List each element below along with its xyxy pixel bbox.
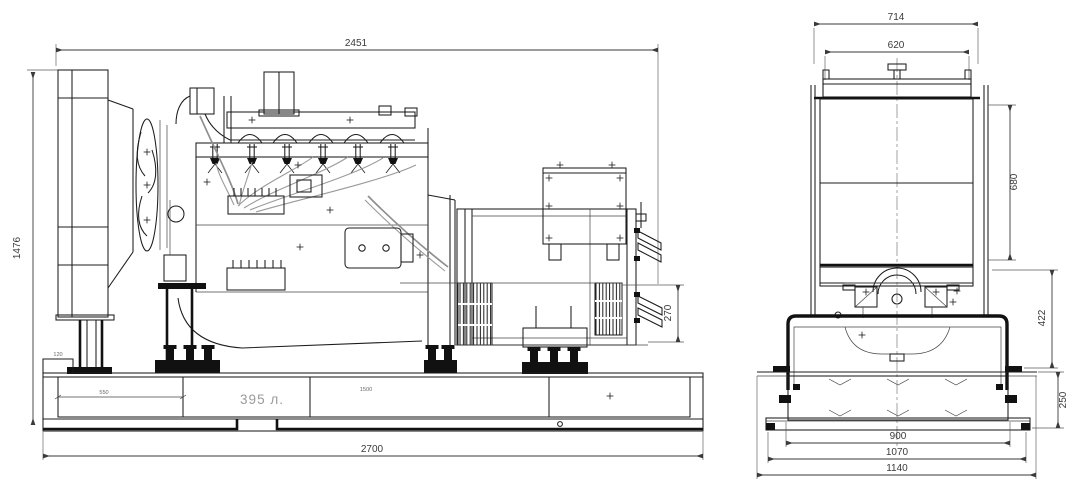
dim-tank-bay-left-label: 550 xyxy=(99,390,108,396)
engine-front xyxy=(835,268,960,318)
dim-mount-height: 270 xyxy=(622,285,684,342)
rear-vent-grille xyxy=(595,283,622,335)
dim-end-offset-label: 120 xyxy=(53,352,62,358)
cylinder-head xyxy=(196,143,428,157)
engine-side xyxy=(155,72,457,373)
dim-base-plate-width: 1140 xyxy=(757,376,1036,479)
tank-capacity-label: 395 л. xyxy=(240,392,284,407)
dim-base-height-label: 250 xyxy=(1058,391,1069,408)
drawing-canvas: 2451 1476 xyxy=(0,0,1078,488)
dim-frame-height: 422 xyxy=(992,270,1058,368)
generator-set-technical-drawing: 2451 1476 xyxy=(0,0,1078,488)
dim-radiator-height-label: 680 xyxy=(1009,173,1020,190)
oil-sump-front xyxy=(845,327,950,354)
dim-overall-height-label: 1476 xyxy=(12,236,23,259)
dim-mount-height-label: 270 xyxy=(663,304,674,321)
starter-motor xyxy=(345,228,413,268)
base-fuel-tank-side: 120 550 1500 395 л. xyxy=(43,352,703,431)
dim-channel-width-label: 1070 xyxy=(886,447,909,458)
dim-overall-length-label: 2451 xyxy=(345,38,368,49)
radiator-side xyxy=(56,70,133,374)
fuel-lines xyxy=(200,116,448,271)
terminal-box xyxy=(543,162,626,260)
air-intake-stack xyxy=(259,72,299,116)
dim-radiator-height: 680 xyxy=(988,105,1020,260)
right-view: 714 620 xyxy=(757,12,1069,479)
dim-overall-height: 1476 xyxy=(12,70,58,425)
engine-front-mount xyxy=(155,283,220,373)
coupling-mount xyxy=(424,345,457,373)
fuel-filter-row xyxy=(227,260,285,290)
alternator-mount xyxy=(522,306,588,374)
injectors xyxy=(208,144,400,173)
dim-skid-width: 900 xyxy=(786,422,1010,447)
dim-base-height: 250 xyxy=(1032,372,1069,428)
dim-overall-width-label: 714 xyxy=(888,12,905,23)
dim-base-plate-width-label: 1140 xyxy=(886,463,908,474)
left-view: 2451 1476 xyxy=(12,38,703,460)
dim-skid-width-label: 900 xyxy=(890,431,907,442)
dim-base-length-label: 2700 xyxy=(361,444,384,455)
exhaust-elbow xyxy=(176,88,214,124)
skid-frame-front xyxy=(773,316,1022,390)
oil-pan xyxy=(178,298,422,348)
dim-overall-width: 714 xyxy=(814,12,978,64)
radiator-front xyxy=(811,64,988,317)
cooling-fan xyxy=(136,119,167,251)
dim-base-length: 2700 xyxy=(43,432,703,460)
dim-tank-bay-right-label: 1500 xyxy=(360,387,372,393)
front-vent-grille xyxy=(458,283,492,345)
dim-frame-height-label: 422 xyxy=(1037,309,1048,326)
alternator-side xyxy=(400,162,662,374)
dim-core-width-label: 620 xyxy=(888,40,905,51)
